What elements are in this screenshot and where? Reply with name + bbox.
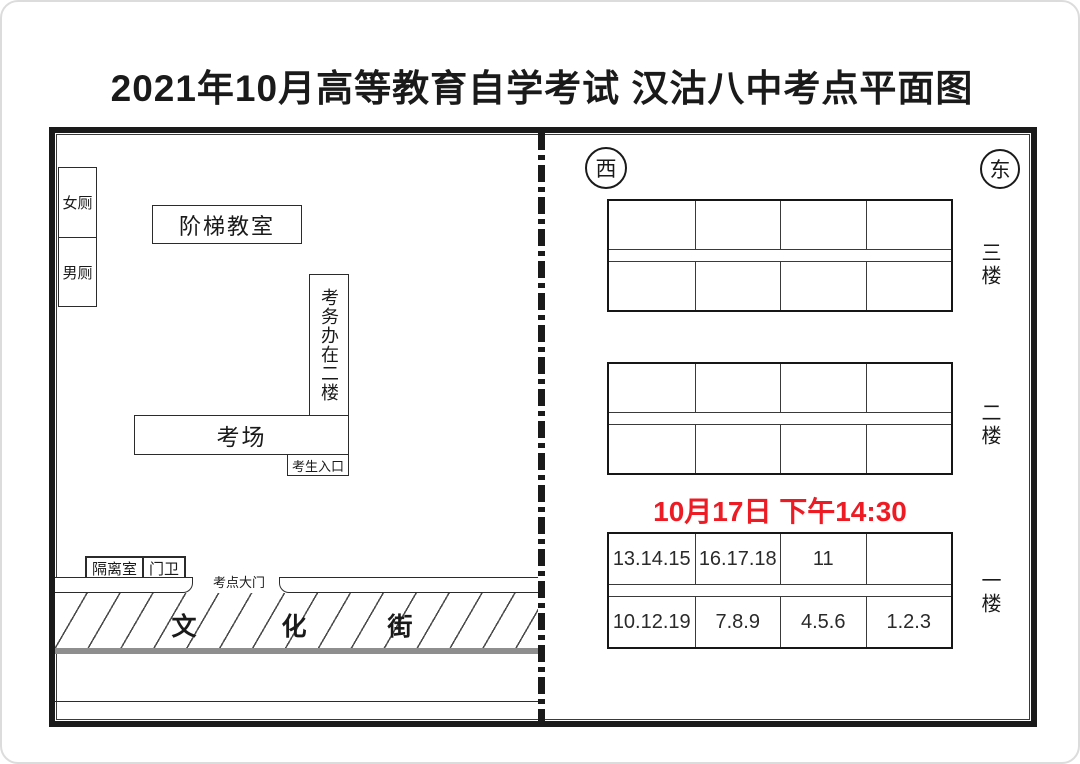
room-cell	[866, 262, 952, 310]
floor-3-corridor	[609, 249, 951, 262]
floor-3-label: 三楼	[978, 242, 1004, 288]
page-title: 2021年10月高等教育自学考试 汉沽八中考点平面图	[2, 58, 1080, 112]
street-far-edge-line	[55, 701, 538, 702]
room-cell	[695, 201, 781, 249]
room-cell	[866, 425, 952, 473]
main-gate-label: 考点大门	[200, 572, 278, 591]
gate-wall-right	[279, 577, 540, 593]
compass-east-badge: 东	[980, 149, 1020, 189]
room-cell	[609, 201, 695, 249]
room-cell	[866, 364, 952, 412]
floor-2-table	[607, 362, 953, 475]
men-toilet-room: 男厕	[59, 237, 96, 306]
room-cell	[695, 262, 781, 310]
floor-3-top-row	[609, 201, 951, 249]
floor-2-label: 二楼	[978, 402, 1004, 448]
candidate-entrance-box: 考生入口	[287, 454, 349, 476]
floor-2-top-row	[609, 364, 951, 412]
floor-2-corridor	[609, 412, 951, 425]
floor-3-bottom-row	[609, 262, 951, 310]
room-cell	[695, 425, 781, 473]
room-cell	[609, 262, 695, 310]
room-cell: 10.12.19	[609, 597, 695, 647]
room-cell	[780, 425, 866, 473]
room-cell: 13.14.15	[609, 534, 695, 584]
street-name-char: 化	[279, 607, 309, 643]
women-toilet-room: 女厕	[59, 168, 96, 237]
toilet-block: 女厕 男厕	[58, 167, 97, 307]
isolation-room: 隔离室	[87, 558, 142, 578]
center-divider-line	[538, 133, 545, 721]
room-cell: 4.5.6	[780, 597, 866, 647]
room-cell	[866, 534, 952, 584]
session-datetime-text: 10月17日 下午14:30	[607, 490, 953, 530]
room-cell	[695, 364, 781, 412]
room-cell	[866, 201, 952, 249]
street-name-char: 街	[385, 607, 415, 643]
floor-1-bottom-row: 10.12.19 7.8.9 4.5.6 1.2.3	[609, 597, 951, 647]
room-cell	[609, 425, 695, 473]
room-cell	[780, 364, 866, 412]
room-cell	[609, 364, 695, 412]
street-name-char: 文	[169, 607, 199, 643]
room-cell: 16.17.18	[695, 534, 781, 584]
floor-1-label: 一楼	[978, 570, 1004, 616]
guard-room: 门卫	[142, 558, 184, 578]
floor-2-bottom-row	[609, 425, 951, 473]
street-curb-line	[55, 648, 538, 654]
floor-1-table: 13.14.15 16.17.18 11 10.12.19 7.8.9 4.5.…	[607, 532, 953, 649]
lecture-hall-room: 阶梯教室	[152, 205, 302, 244]
exam-office-wing: 考务办在二楼	[309, 274, 349, 416]
room-cell	[780, 201, 866, 249]
gate-wall-left	[55, 577, 193, 593]
floor-1-corridor	[609, 584, 951, 597]
compass-west-badge: 西	[585, 147, 627, 189]
room-cell: 7.8.9	[695, 597, 781, 647]
floor-1-top-row: 13.14.15 16.17.18 11	[609, 534, 951, 584]
room-cell: 11	[780, 534, 866, 584]
exam-room-wing: 考场	[134, 415, 349, 455]
room-cell: 1.2.3	[866, 597, 952, 647]
plan-canvas: 2021年10月高等教育自学考试 汉沽八中考点平面图 女厕 男厕 阶梯教室 考务…	[0, 0, 1080, 764]
room-cell	[780, 262, 866, 310]
floor-3-table	[607, 199, 953, 312]
